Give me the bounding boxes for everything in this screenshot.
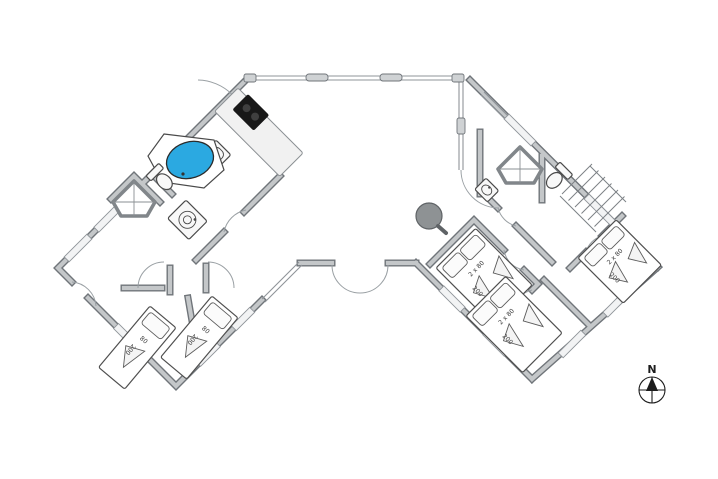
hall-door-arc-a (138, 262, 164, 288)
floor-plan-page: 80 200 80 200 2 x 80 200 2 x 80 200 2 x … (0, 0, 718, 479)
floor-plan: 80 200 80 200 2 x 80 200 2 x 80 200 2 x … (0, 0, 718, 479)
window-mullion (244, 74, 256, 82)
window-mullion (306, 74, 328, 81)
shower-right-icon (498, 147, 542, 183)
bed-right-east: 2 x 80 200 (578, 220, 661, 303)
window-mullion (380, 74, 402, 81)
compass-rose: N (639, 363, 665, 403)
hot-tub-drain (181, 172, 184, 175)
hall-door-arc-b (208, 262, 234, 288)
window-mullion (452, 74, 464, 82)
north-arrow (646, 377, 658, 391)
washing-machine-icon (168, 200, 208, 240)
north-label: N (647, 363, 656, 376)
window-mullion (457, 118, 465, 134)
kitchen-counter (215, 88, 303, 176)
bath-right-door-arc (498, 208, 516, 226)
tree-icon (416, 203, 446, 233)
entrance-double-door (332, 265, 388, 293)
